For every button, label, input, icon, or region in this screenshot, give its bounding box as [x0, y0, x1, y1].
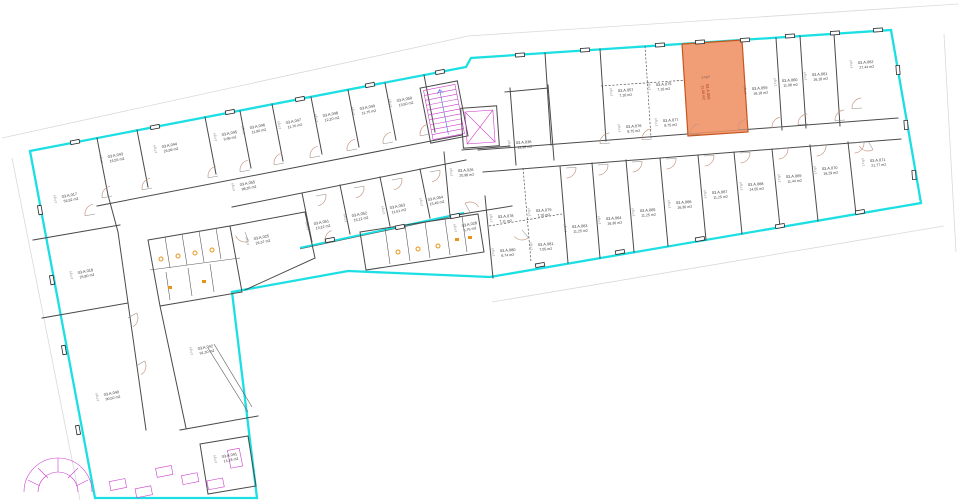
door-arcs [83, 98, 873, 375]
svg-text:16,18 m2: 16,18 m2 [813, 77, 828, 82]
room-label: IDNRFLLH03.A.0768,75 m2 [618, 123, 642, 134]
svg-text:IDNRFLLH: IDNRFLLH [618, 124, 622, 133]
room-label: IDNRFLLH03.A.01756,92 m2 [53, 191, 78, 205]
room-label: IDNRFLLH03.A.06416,30 m2 [598, 215, 623, 226]
room-label: IDNRFLLH03.A.05216,12 m2 [343, 210, 368, 224]
svg-text:IDNRFLLH: IDNRFLLH [241, 126, 246, 135]
svg-text:7,16 m2: 7,16 m2 [619, 93, 632, 98]
svg-text:IDNRFLLH: IDNRFLLH [153, 145, 158, 154]
room-label: IDNRFLLH03.A.06116,18 m2 [804, 71, 829, 82]
highlighted-room[interactable] [682, 40, 748, 136]
room-label: IDNRFLLH03.A.0286,76 m2 [453, 220, 478, 234]
svg-text:IDNRFLLH: IDNRFLLH [95, 393, 100, 402]
svg-text:IDNRFLLH: IDNRFLLH [862, 158, 866, 167]
room-label: IDNRFLLH03.A.0778,75 m2 [655, 117, 679, 128]
svg-text:IDNRFLLH: IDNRFLLH [528, 208, 532, 217]
svg-text:IDNRFLLH: IDNRFLLH [744, 86, 748, 95]
svg-text:IDNRFLLH: IDNRFLLH [704, 190, 708, 199]
room-label: IDNRFLLH03.A.06011,08 m2 [774, 77, 799, 88]
room-label: IDNRFLLH03.A.06227,44 m2 [850, 59, 875, 70]
svg-text:16,30 m2: 16,30 m2 [607, 221, 622, 226]
svg-text:7,16 m2: 7,16 m2 [537, 213, 550, 218]
toilet-block-a [148, 226, 242, 306]
svg-text:16,30 m2: 16,30 m2 [677, 205, 692, 210]
svg-text:IDNRFLLH: IDNRFLLH [668, 200, 672, 209]
room-label: IDNRFLLH03.A.04291,30 m2 [189, 343, 214, 357]
room-label: IDNRFLLH03.A.05598,35 m2 [231, 179, 256, 193]
svg-text:IDNRFLLH: IDNRFLLH [189, 347, 194, 356]
wall-ticks [37, 28, 916, 435]
svg-text:7,11 m2: 7,11 m2 [499, 219, 512, 224]
svg-text:IDNRFLLH: IDNRFLLH [530, 242, 534, 251]
room-label: IDNRFLLH03.A.06311,25 m2 [564, 223, 588, 234]
svg-text:IDNRFLLH: IDNRFLLH [632, 208, 636, 217]
svg-text:IDNRFLLH: IDNRFLLH [419, 198, 424, 207]
svg-text:11,25 m2: 11,25 m2 [713, 195, 728, 200]
room-label: IDNRFLLH03.A.0459,99 m2 [213, 129, 238, 143]
room-label: IDNRFLLH03.A.05013,60 m2 [388, 95, 414, 109]
svg-text:8,75 m2: 8,75 m2 [627, 129, 640, 134]
svg-text:11,44 m2: 11,44 m2 [787, 179, 802, 184]
room-label: IDNRFLLH03.A.06616,30 m2 [668, 199, 693, 210]
svg-text:IDNRFLLH: IDNRFLLH [648, 82, 652, 91]
room-label: IDNRFLLH03.A.04911,75 m2 [351, 103, 376, 117]
svg-text:8,75 m2: 8,75 m2 [664, 123, 677, 128]
room-label: IDNRFLLH03.A.07121,77 m2 [862, 157, 887, 168]
svg-text:IDNRFLLH: IDNRFLLH [381, 206, 386, 215]
room-label: IDNRFLLH03.A.04812,20 m2 [314, 110, 339, 124]
room-label: IDNRFLLH03.A.01825,80 m2 [69, 267, 94, 281]
svg-text:11,08 m2: 11,08 m2 [783, 83, 798, 88]
svg-text:IDNRFLLH: IDNRFLLH [598, 216, 602, 225]
svg-text:27,44 m2: 27,44 m2 [859, 65, 874, 70]
svg-text:IDNRFLLH: IDNRFLLH [610, 88, 614, 97]
svg-text:IDNRFLLH: IDNRFLLH [492, 248, 496, 257]
room-label: IDNRFLLH03.A.04114,18 m2 [213, 451, 238, 465]
floor-plan-canvas: IDNRFLLH03.A.01756,92 m2 IDNRFLLH03.A.04… [0, 0, 960, 500]
spiral-staircase [24, 458, 92, 492]
svg-text:7,05 m2: 7,05 m2 [539, 247, 552, 252]
svg-text:IDNRFLLH: IDNRFLLH [804, 72, 808, 81]
room-label: IDNRFLLH03.A.02620,98 m2 [450, 167, 475, 178]
room-label: IDNRFLLH03.A.0817,05 m2 [530, 241, 554, 252]
svg-text:IDNRFLLH: IDNRFLLH [99, 155, 104, 164]
svg-text:IDNRFLLH: IDNRFLLH [213, 133, 218, 142]
svg-text:6,74 m2: 6,74 m2 [501, 253, 514, 258]
room-label: IDNRFLLH03.A.0806,74 m2 [492, 247, 517, 258]
svg-text:IDNRFLLH: IDNRFLLH [453, 224, 458, 233]
svg-text:11,25 m2: 11,25 m2 [573, 229, 588, 234]
svg-text:16,18 m2: 16,18 m2 [753, 91, 768, 96]
room-label: IDNRFLLH03.A.04090,50 m2 [95, 389, 121, 403]
svg-text:IDNRFLLH: IDNRFLLH [655, 118, 659, 127]
room-label: IDNRFLLH03.A.04316,55 m2 [99, 151, 124, 165]
room-label: IDNRFLLH03.A.06814,55 m2 [740, 181, 765, 192]
room-label: IDNRFLLH03.A.0787,11 m2 [490, 213, 514, 224]
svg-text:IDNRFLLH: IDNRFLLH [388, 99, 393, 108]
svg-text:11,25 m2: 11,25 m2 [641, 213, 656, 218]
svg-text:IDNRFLLH: IDNRFLLH [245, 237, 250, 246]
svg-text:16,29 m2: 16,29 m2 [823, 171, 838, 176]
room-label: IDNRFLLH03.A.04426,99 m2 [153, 141, 179, 155]
room-label: IDNRFLLH03.A.07016,29 m2 [814, 165, 839, 176]
svg-text:IDNRFLLH: IDNRFLLH [850, 60, 854, 69]
room-label: IDNRFLLH03.A.0577,16 m2 [610, 87, 634, 98]
svg-text:IDNRFLLH: IDNRFLLH [69, 271, 74, 280]
svg-text:IDNRFLLH: IDNRFLLH [277, 121, 282, 130]
room-label: IDNRFLLH03.A.06711,25 m2 [704, 189, 728, 200]
svg-text:21,77 m2: 21,77 m2 [871, 163, 886, 168]
room-label: IDNRFLLH03.A.03613,36 m2 [508, 139, 533, 150]
room-label: IDNRFLLH03.A.04611,90 m2 [241, 122, 266, 136]
svg-text:14,55 m2: 14,55 m2 [749, 187, 764, 192]
room-label: IDNRFLLH03.A.05113,22 m2 [305, 218, 330, 232]
room-label: IDNRFLLH03.A.0797,16 m2 [528, 207, 552, 218]
exterior-boundary [30, 30, 921, 498]
svg-text:IDNRFLLH: IDNRFLLH [778, 174, 782, 183]
room-label: IDNRFLLH03.A.06911,44 m2 [778, 173, 802, 184]
svg-text:20,98 m2: 20,98 m2 [459, 173, 474, 178]
room-label: IDNRFLLH03.A.05415,49 m2 [419, 194, 445, 208]
svg-text:IDNRFLLH: IDNRFLLH [213, 455, 218, 464]
room-label: IDNRFLLH03.A.04711,76 m2 [277, 117, 302, 131]
room-label: IDNRFLLH03.A.05916,18 m2 [744, 85, 769, 96]
room-label: IDNRFLLH03.A.02526,37 m2 [245, 233, 270, 247]
svg-text:IDNRFLLH: IDNRFLLH [814, 166, 818, 175]
svg-text:IDNRFLLH: IDNRFLLH [53, 195, 58, 204]
svg-text:IDNRFLLH: IDNRFLLH [740, 182, 744, 191]
svg-text:7,16 m2: 7,16 m2 [657, 87, 670, 92]
svg-text:13,36 m2: 13,36 m2 [517, 145, 532, 150]
svg-text:IDNRFLLH: IDNRFLLH [564, 224, 568, 233]
svg-text:IDNRFLLH: IDNRFLLH [450, 168, 454, 177]
room-label: IDNRFLLH03.A.06511,25 m2 [632, 207, 656, 218]
svg-text:IDNRFLLH: IDNRFLLH [351, 107, 356, 116]
svg-text:IDNRFLLH: IDNRFLLH [490, 214, 494, 223]
svg-text:IDNRFLLH: IDNRFLLH [774, 78, 778, 87]
svg-text:IDNRFLLH: IDNRFLLH [314, 114, 319, 123]
svg-text:IDNRFLLH: IDNRFLLH [231, 183, 236, 192]
room-labels: IDNRFLLH03.A.01756,92 m2 IDNRFLLH03.A.04… [53, 59, 886, 465]
